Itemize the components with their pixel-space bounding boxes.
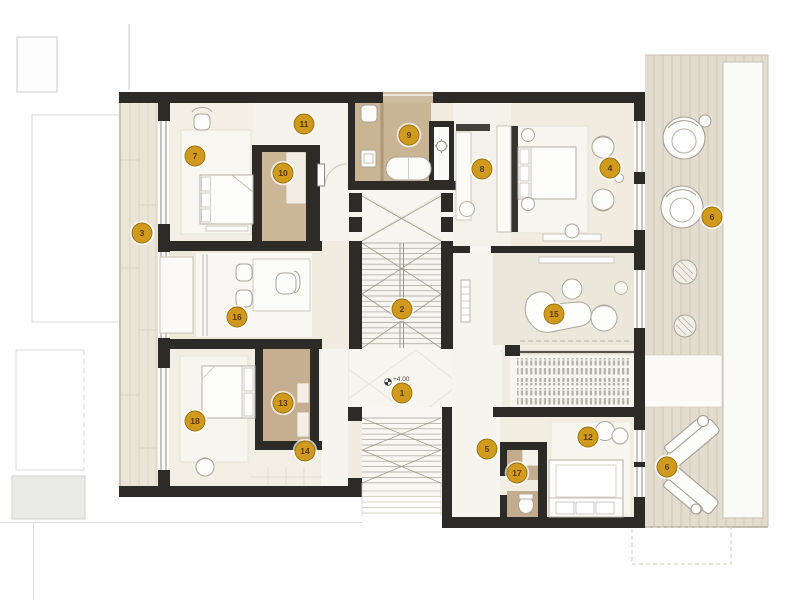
svg-text:9: 9 (407, 130, 412, 140)
svg-text:1: 1 (400, 388, 405, 398)
svg-text:7: 7 (193, 151, 198, 161)
svg-text:17: 17 (512, 468, 522, 478)
svg-text:12: 12 (583, 432, 593, 442)
svg-text:3: 3 (140, 228, 145, 238)
svg-text:10: 10 (278, 168, 288, 178)
svg-text:2: 2 (400, 304, 405, 314)
svg-text:14: 14 (300, 446, 310, 456)
svg-text:4: 4 (608, 163, 613, 173)
svg-text:6: 6 (665, 462, 670, 472)
svg-text:11: 11 (300, 119, 309, 129)
svg-text:5: 5 (485, 444, 490, 454)
svg-text:18: 18 (190, 416, 200, 426)
svg-text:13: 13 (278, 398, 288, 408)
svg-text:15: 15 (549, 309, 559, 319)
svg-text:8: 8 (480, 164, 485, 174)
svg-text:16: 16 (232, 312, 242, 322)
svg-text:6: 6 (710, 212, 715, 222)
